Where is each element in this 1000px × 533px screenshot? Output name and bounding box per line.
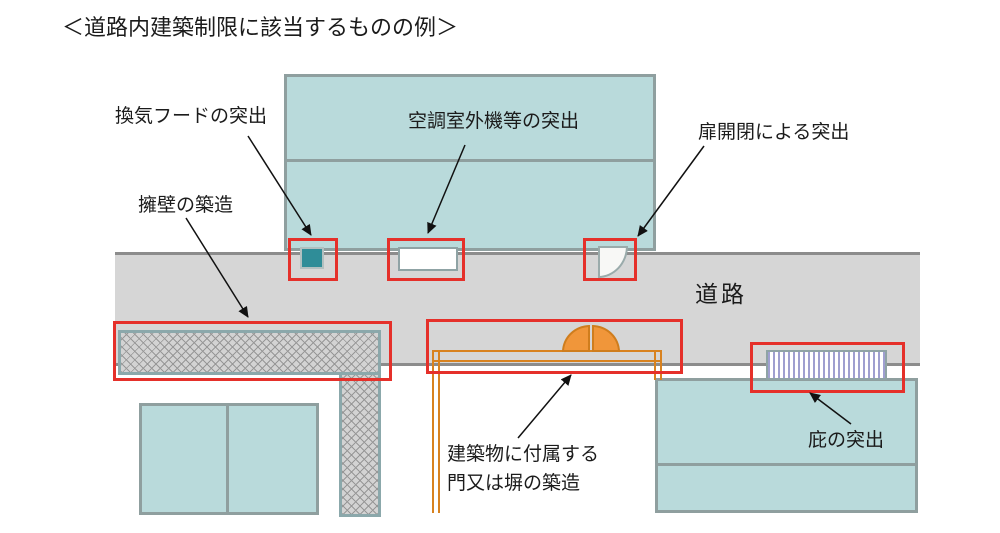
highlight-box-vent-hood bbox=[288, 238, 338, 281]
label-gate-fence-line1: 建築物に付属する bbox=[447, 440, 599, 469]
fence-post-left bbox=[432, 352, 440, 513]
label-retaining-wall: 擁壁の築造 bbox=[138, 195, 233, 218]
label-eaves: 庇の突出 bbox=[808, 430, 884, 453]
highlight-box-retaining-wall bbox=[113, 321, 392, 381]
building-bottom-left bbox=[139, 403, 319, 515]
highlight-box-door bbox=[583, 238, 637, 281]
label-ac-unit: 空調室外機等の突出 bbox=[408, 111, 579, 134]
label-gate-fence-line2: 門又は塀の築造 bbox=[447, 469, 599, 498]
highlight-box-gate-fence bbox=[426, 319, 683, 374]
label-door-swing: 扉開閉による突出 bbox=[698, 122, 849, 145]
building-top bbox=[284, 74, 656, 251]
retaining-wall-vertical bbox=[339, 372, 381, 517]
label-road: 道路 bbox=[695, 281, 747, 309]
diagram-canvas: ＜道路内建築制限に該当するものの例＞ 換気フー bbox=[0, 0, 1000, 533]
building-bottom-right-floor-line bbox=[655, 463, 918, 466]
highlight-box-ac-unit bbox=[387, 238, 465, 281]
building-top-floor-line bbox=[284, 159, 656, 162]
building-bottom-left-wall-line bbox=[226, 403, 229, 515]
arrow-gate-fence bbox=[518, 375, 571, 438]
page-title: ＜道路内建築制限に該当するものの例＞ bbox=[62, 10, 458, 42]
highlight-box-eaves bbox=[750, 342, 905, 393]
label-vent-hood: 換気フードの突出 bbox=[115, 106, 267, 129]
label-gate-fence: 建築物に付属する 門又は塀の築造 bbox=[447, 440, 599, 498]
